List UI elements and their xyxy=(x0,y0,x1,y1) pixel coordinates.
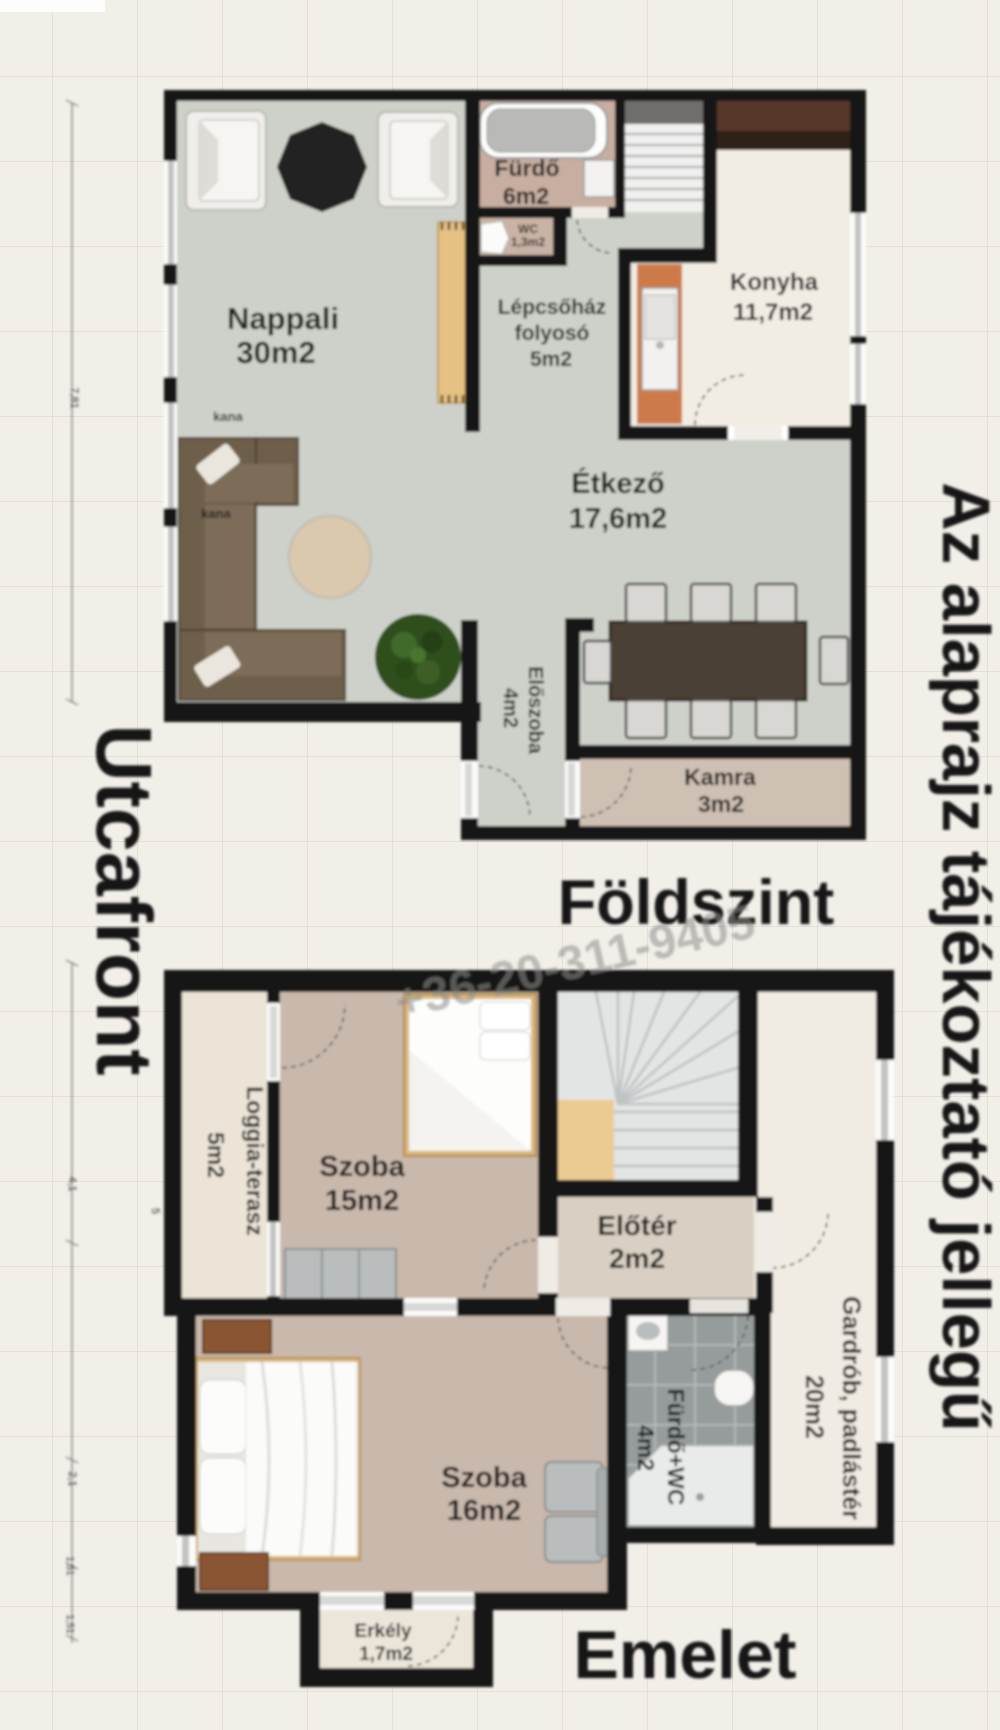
svg-text:6m2: 6m2 xyxy=(503,183,549,209)
svg-text:WC: WC xyxy=(518,222,538,236)
svg-text:Szoba: Szoba xyxy=(441,1462,527,1494)
svg-text:1,51: 1,51 xyxy=(64,1556,75,1576)
svg-text:Előszoba: Előszoba xyxy=(524,666,546,755)
svg-text:20m2: 20m2 xyxy=(800,1375,828,1439)
svg-text:2m2: 2m2 xyxy=(609,1243,665,1274)
svg-text:Erkély: Erkély xyxy=(354,1621,411,1642)
svg-text:Lépcsőház: Lépcsőház xyxy=(498,296,607,319)
svg-text:Étkező: Étkező xyxy=(571,466,664,500)
svg-text:kana: kana xyxy=(213,409,243,424)
svg-text:3m2: 3m2 xyxy=(698,791,744,817)
svg-text:Emelet: Emelet xyxy=(574,1617,797,1693)
svg-text:7,81: 7,81 xyxy=(68,387,80,408)
svg-text:Kamra: Kamra xyxy=(684,764,756,790)
svg-text:1,7m2: 1,7m2 xyxy=(359,1644,413,1665)
svg-text:1,3m2: 1,3m2 xyxy=(511,235,545,249)
svg-text:5m2: 5m2 xyxy=(530,348,572,371)
svg-text:Fürdő+WC: Fürdő+WC xyxy=(663,1389,689,1506)
svg-text:Fürdő: Fürdő xyxy=(494,155,559,181)
svg-text:15m2: 15m2 xyxy=(325,1185,399,1217)
svg-text:Konyha: Konyha xyxy=(730,269,819,296)
svg-text:4m2: 4m2 xyxy=(633,1425,659,1471)
svg-text:1,51: 1,51 xyxy=(64,1614,75,1634)
svg-text:kana: kana xyxy=(201,506,231,521)
svg-text:4m2: 4m2 xyxy=(499,688,521,728)
svg-text:Utcafront: Utcafront xyxy=(80,724,169,1075)
svg-text:Loggia-terasz: Loggia-terasz xyxy=(242,1086,268,1236)
svg-text:Az alaprajz tájékoztató jelleg: Az alaprajz tájékoztató jellegű xyxy=(928,482,1000,1431)
svg-text:4,1: 4,1 xyxy=(66,1176,78,1191)
svg-text:5: 5 xyxy=(149,1208,161,1214)
svg-text:folyosó: folyosó xyxy=(515,322,590,345)
svg-text:Nappali: Nappali xyxy=(227,301,339,336)
svg-text:16m2: 16m2 xyxy=(447,1495,521,1527)
svg-text:Gardrób, padlástér: Gardrób, padlástér xyxy=(837,1296,865,1520)
svg-text:17,6m2: 17,6m2 xyxy=(569,503,667,535)
svg-text:Előtér: Előtér xyxy=(597,1210,676,1241)
svg-text:11,7m2: 11,7m2 xyxy=(733,299,813,326)
svg-text:30m2: 30m2 xyxy=(236,335,315,370)
svg-text:Szoba: Szoba xyxy=(319,1151,405,1183)
svg-text:2,1: 2,1 xyxy=(66,1471,78,1486)
svg-text:5m2: 5m2 xyxy=(203,1132,229,1178)
